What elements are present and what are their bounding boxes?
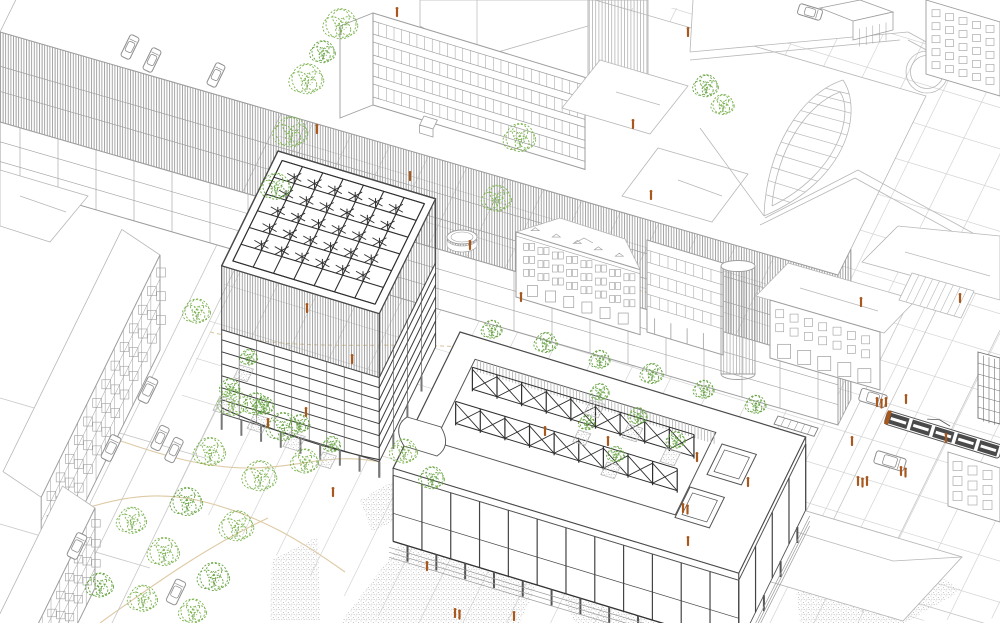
person: [860, 297, 863, 306]
person-head: [866, 476, 869, 479]
person: [687, 27, 690, 36]
person: [900, 466, 903, 475]
axonometric-canvas: [0, 0, 1000, 623]
person-head: [544, 426, 547, 429]
site-axonometric-drawing: [0, 0, 1000, 623]
person-head: [885, 397, 888, 400]
person: [513, 611, 516, 620]
person-head: [861, 478, 864, 481]
person: [959, 293, 962, 302]
person: [687, 536, 690, 545]
person-head: [513, 611, 516, 614]
person-head: [332, 487, 335, 490]
person: [866, 476, 869, 485]
person: [267, 418, 270, 427]
person: [306, 303, 309, 312]
person-head: [454, 608, 457, 611]
person-head: [607, 436, 610, 439]
person: [332, 487, 335, 496]
cylinder-tower: [721, 266, 755, 374]
person: [747, 477, 750, 486]
person: [682, 503, 685, 512]
person-head: [458, 610, 461, 613]
person-head: [747, 477, 750, 480]
person: [686, 505, 689, 514]
person: [650, 190, 653, 199]
person-head: [687, 27, 690, 30]
person: [409, 171, 412, 180]
person-head: [904, 468, 907, 471]
person: [454, 608, 457, 617]
person-head: [687, 536, 690, 539]
person-head: [686, 505, 689, 508]
person-head: [959, 293, 962, 296]
person-head: [876, 397, 879, 400]
person: [305, 407, 308, 416]
person-head: [396, 7, 399, 10]
person-head: [306, 303, 309, 306]
person: [851, 436, 854, 445]
person-head: [900, 466, 903, 469]
person: [544, 426, 547, 435]
person-head: [650, 190, 653, 193]
person-head: [469, 240, 472, 243]
person-head: [520, 292, 523, 295]
person-head: [426, 561, 429, 564]
person-head: [696, 452, 699, 455]
person: [520, 292, 523, 301]
person-head: [880, 399, 883, 402]
person: [607, 436, 610, 445]
person: [316, 124, 319, 133]
person: [469, 240, 472, 249]
person: [904, 468, 907, 477]
person-head: [305, 407, 308, 410]
person: [632, 119, 635, 128]
person: [945, 433, 948, 442]
person: [458, 610, 461, 619]
person: [885, 397, 888, 406]
person: [876, 397, 879, 406]
person: [880, 399, 883, 408]
person-head: [632, 119, 635, 122]
person-head: [316, 124, 319, 127]
person-head: [351, 354, 354, 357]
person: [861, 478, 864, 487]
person-head: [267, 418, 270, 421]
person-head: [857, 476, 860, 479]
person-head: [860, 297, 863, 300]
person: [905, 394, 908, 403]
person: [857, 476, 860, 485]
person-head: [409, 171, 412, 174]
person: [426, 561, 429, 570]
person-head: [851, 436, 854, 439]
person: [696, 452, 699, 461]
person: [396, 7, 399, 16]
person-head: [945, 433, 948, 436]
person: [351, 354, 354, 363]
person-head: [682, 503, 685, 506]
person-head: [905, 394, 908, 397]
end-wall: [340, 13, 373, 118]
